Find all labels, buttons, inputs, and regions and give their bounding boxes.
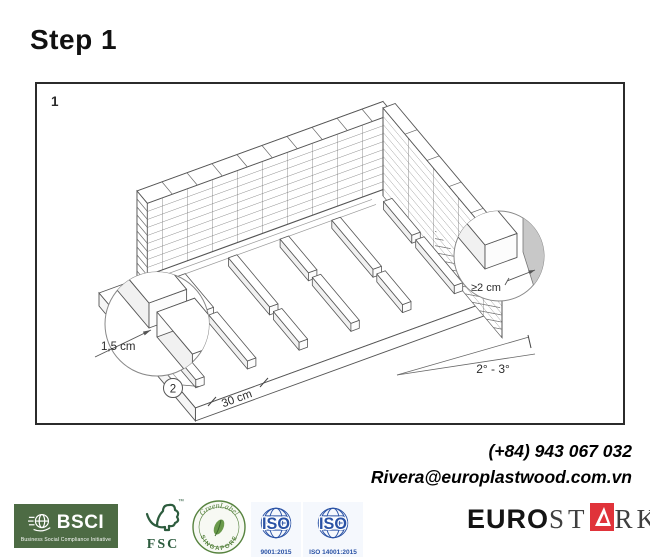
slope-dimension: 2° - 3°	[397, 335, 535, 376]
eurostark-euro: EURO	[467, 506, 549, 533]
eurostark-st: ST	[549, 506, 589, 533]
iso-9001-name: ISO	[262, 515, 290, 533]
bsci-tagline: Business Social Compliance Initiative	[21, 537, 111, 543]
iso-9001-logo: ISO 9001:2015	[251, 502, 301, 557]
bsci-globe-icon	[28, 509, 54, 535]
contact-email: Rivera@europlastwood.com.vn	[371, 464, 632, 490]
bsci-name: BSCI	[57, 513, 104, 532]
bsci-logo: BSCI Business Social Compliance Initiati…	[14, 504, 118, 548]
joist-gap-label: 1,5 cm	[101, 341, 136, 353]
iso-14001-caption: ISO 14001:2015	[305, 549, 361, 556]
iso-14001-name: ISO	[319, 515, 347, 533]
greenlabel-singapore-logo: GreenLabel SINGAPORE	[192, 500, 246, 554]
iso-globe-icon: ISO	[254, 503, 298, 543]
fsc-logo: ™ FSC	[138, 499, 188, 552]
slope-label: 2° - 3°	[476, 362, 510, 376]
contact-phone: (+84) 943 067 032	[371, 438, 632, 464]
page: Step 1	[0, 0, 650, 560]
iso-14001-logo: ISO ISO 14001:2015	[303, 502, 363, 557]
fsc-tree-icon	[143, 499, 183, 533]
iso-globe-icon: ISO	[311, 503, 355, 543]
installation-diagram: 30 cm 2° - 3° 2	[37, 84, 623, 423]
eurostark-logo: EURO ST RK	[467, 503, 650, 533]
fsc-name: FSC	[138, 538, 188, 552]
callout-2-number: 2	[170, 384, 176, 396]
contact-block: (+84) 943 067 032 Rivera@europlastwood.c…	[371, 438, 632, 490]
panel-number: 1	[51, 94, 59, 109]
iso-9001-caption: 9001:2015	[253, 549, 299, 556]
figure-box: 30 cm 2° - 3° 2	[35, 82, 625, 425]
eurostark-red-a-icon	[590, 503, 614, 533]
wall-gap-label: ≥2 cm	[471, 282, 501, 294]
eurostark-rk: RK	[615, 506, 650, 533]
step-title: Step 1	[30, 24, 117, 56]
fsc-trademark: ™	[178, 499, 184, 505]
